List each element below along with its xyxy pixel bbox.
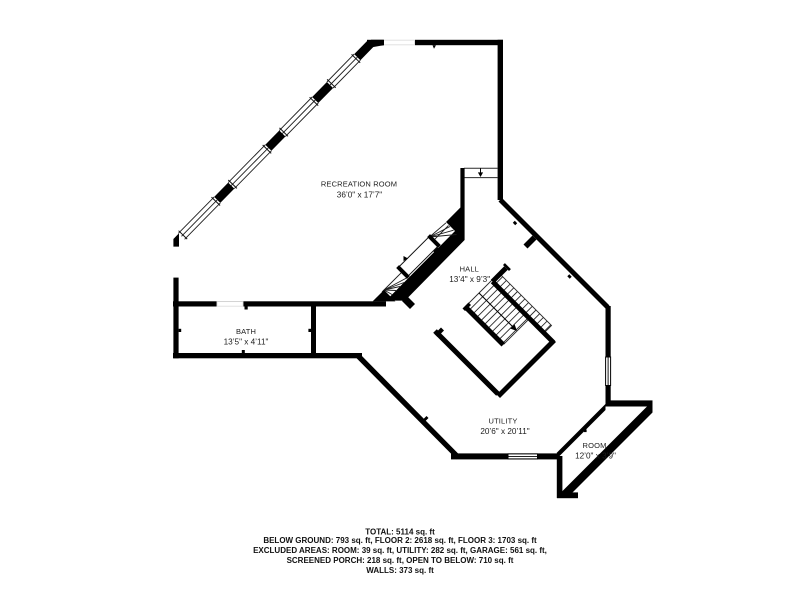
svg-text:TOTAL: 5114 sq. ft: TOTAL: 5114 sq. ft [365, 527, 435, 536]
svg-text:BATH: BATH [236, 327, 256, 336]
svg-text:WALLS: 373 sq. ft: WALLS: 373 sq. ft [366, 566, 434, 575]
svg-text:HALL: HALL [460, 264, 479, 273]
svg-text:EXCLUDED AREAS: ROOM: 39 sq. f: EXCLUDED AREAS: ROOM: 39 sq. ft, UTILITY… [253, 546, 547, 555]
svg-text:12’0" x 3’9": 12’0" x 3’9" [575, 452, 616, 461]
svg-text:RECREATION ROOM: RECREATION ROOM [321, 180, 397, 189]
svg-text:ROOM: ROOM [583, 441, 607, 450]
svg-text:13’4" x 9’3": 13’4" x 9’3" [449, 275, 490, 284]
svg-text:20’6" x 20’11": 20’6" x 20’11" [480, 427, 529, 436]
svg-text:UTILITY: UTILITY [489, 417, 518, 426]
svg-text:BELOW GROUND: 793 sq. ft, FLOO: BELOW GROUND: 793 sq. ft, FLOOR 2: 2618 … [263, 536, 537, 545]
svg-text:36’0" x 17’7": 36’0" x 17’7" [337, 190, 383, 199]
svg-text:SCREENED PORCH: 218 sq. ft, OP: SCREENED PORCH: 218 sq. ft, OPEN TO BELO… [287, 556, 514, 565]
svg-text:13’5" x 4’11": 13’5" x 4’11" [224, 337, 269, 346]
